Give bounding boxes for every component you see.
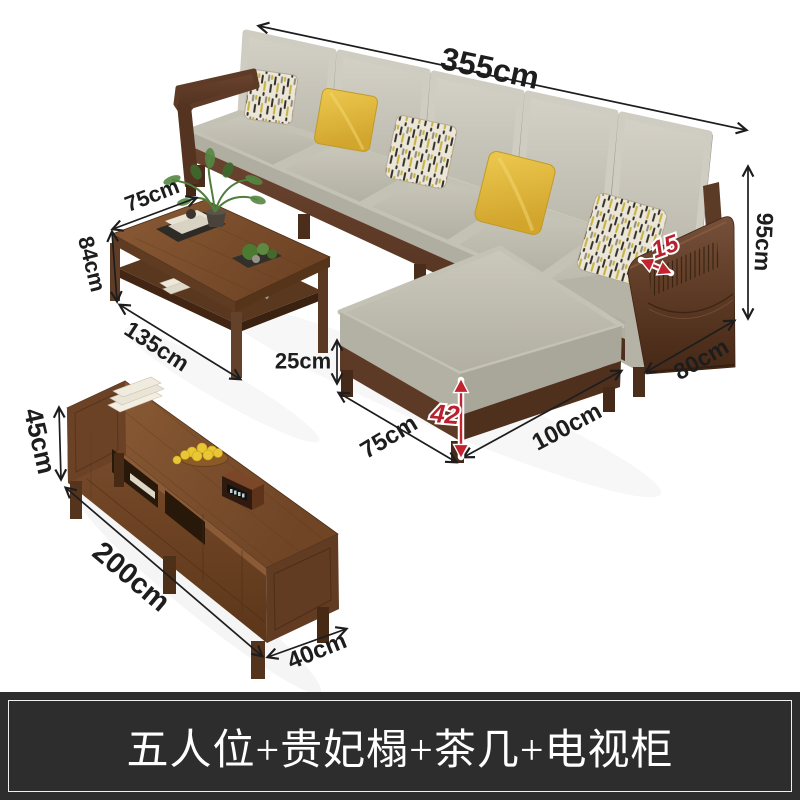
table-length-label: 135cm [120,316,194,377]
cabinet-height-label: 45cm [18,405,62,477]
table-height-label: 84cm [73,234,111,295]
product-banner: 五人位+贵妃榻+茶几+电视柜 [0,692,800,800]
chaise-width-label: 75cm [356,410,423,465]
banner-title: 五人位+贵妃榻+茶几+电视柜 [0,692,800,800]
base-height-label: 25cm [275,349,331,374]
seat-height-label: 42 [428,398,461,431]
table-width-label: 75cm [121,173,183,217]
pillow-striped-2 [384,114,458,189]
pillow-yellow-1 [314,88,379,153]
sofa-height-label: 95cm [749,212,778,272]
figure-svg: 355cm 95cm 15 80cm 100cm 75cm 42 25cm 75… [0,0,800,800]
product-dimension-diagram: 355cm 95cm 15 80cm 100cm 75cm 42 25cm 75… [0,0,800,800]
